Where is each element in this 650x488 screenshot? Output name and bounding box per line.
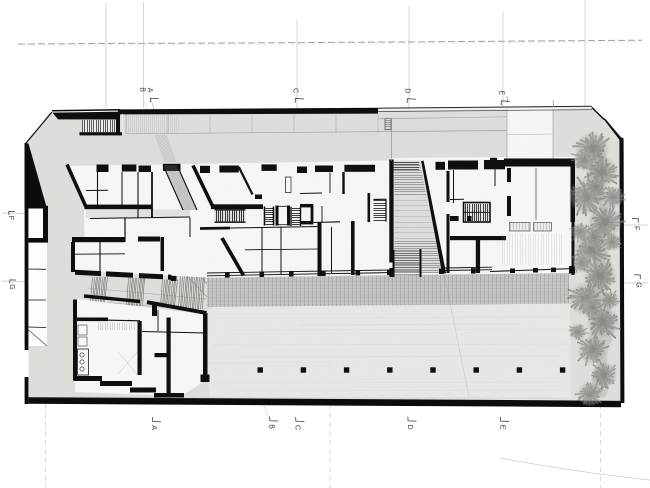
svg-text:E: E xyxy=(498,425,505,430)
svg-text:C: C xyxy=(291,88,298,93)
svg-text:E: E xyxy=(497,91,504,96)
svg-text:A: A xyxy=(150,425,157,430)
svg-text:A: A xyxy=(146,88,153,93)
svg-text:C: C xyxy=(294,425,301,430)
svg-text:B: B xyxy=(139,87,146,92)
svg-text:D: D xyxy=(403,88,410,93)
svg-text:B: B xyxy=(268,424,275,429)
svg-text:F: F xyxy=(633,226,640,230)
svg-text:D: D xyxy=(406,425,413,430)
svg-text:F: F xyxy=(7,216,14,220)
svg-text:G: G xyxy=(635,282,642,287)
svg-text:G: G xyxy=(8,284,15,289)
